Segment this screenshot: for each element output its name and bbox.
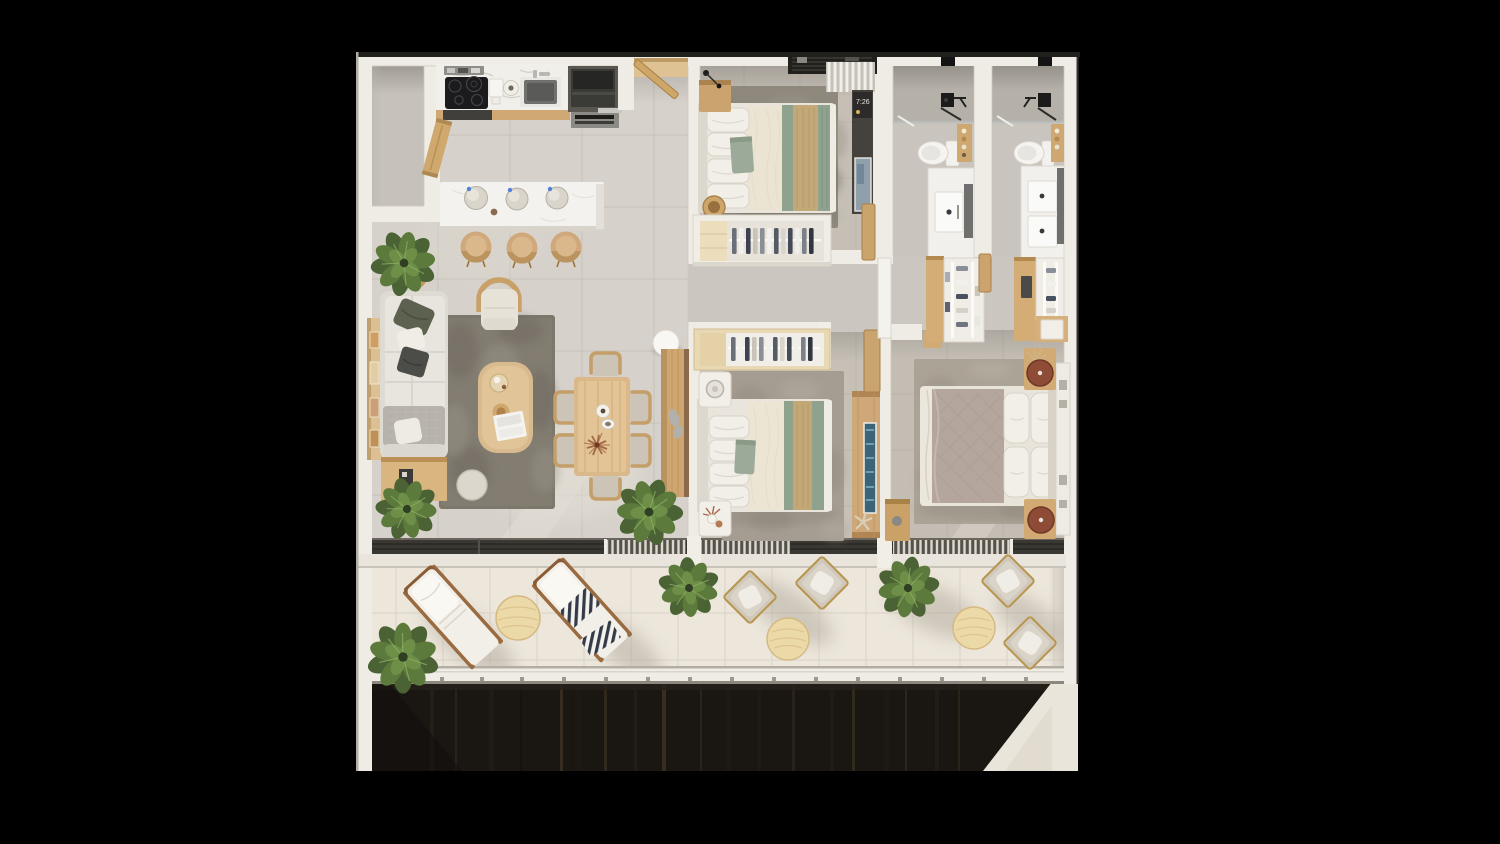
svg-text:7:26: 7:26 <box>856 99 870 106</box>
